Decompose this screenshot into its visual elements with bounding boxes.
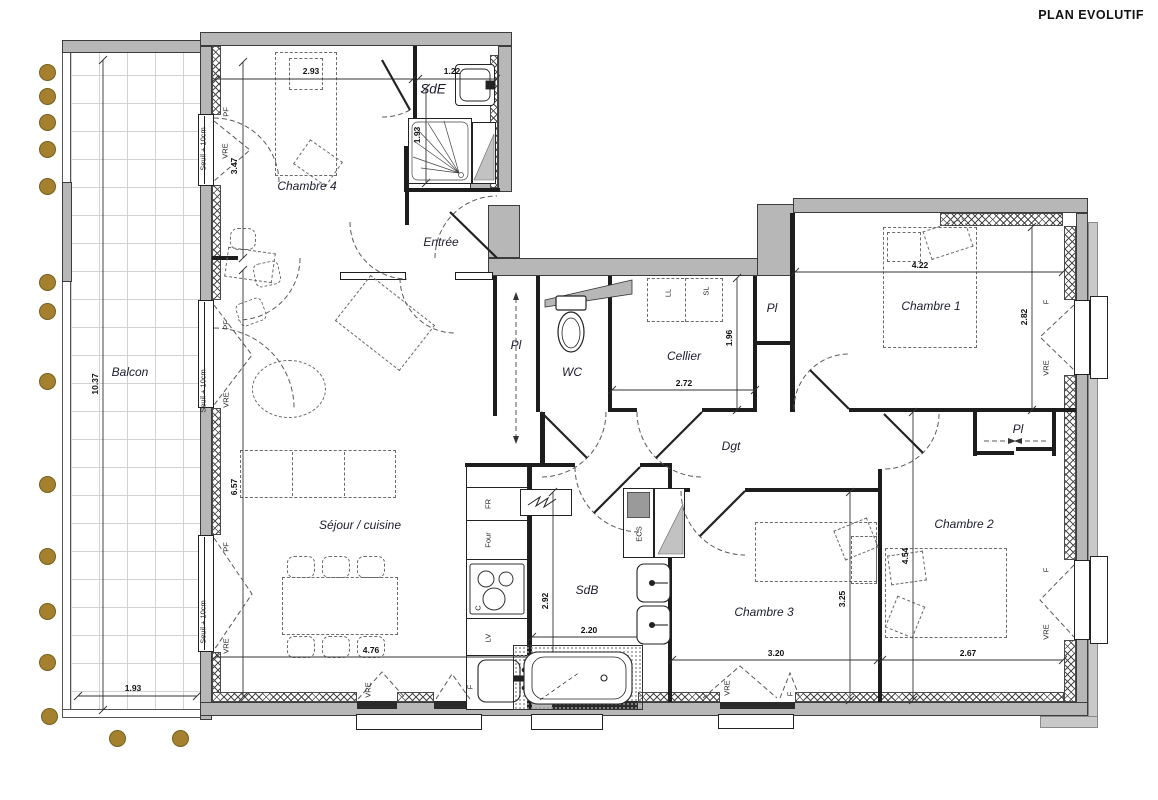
- balcony-post-dot: [39, 64, 56, 81]
- insulation-hatch: [1064, 226, 1076, 300]
- exterior-wall-right: [1076, 213, 1088, 716]
- laundry-divider: [685, 278, 686, 322]
- sofa: [240, 450, 396, 498]
- water-heater-label: ECS: [635, 526, 644, 541]
- pillow: [887, 232, 921, 262]
- window-sill-bottom: [531, 714, 603, 730]
- sofa-seat-line: [292, 452, 293, 496]
- insulation-hatch: [638, 692, 720, 702]
- insulation-hatch: [212, 408, 221, 535]
- closet-label-pl: Pl: [767, 301, 778, 315]
- balcony-railing-bottom: [62, 709, 212, 718]
- wall-cellier-bottom: [612, 408, 637, 412]
- dim-balcon-height: 10.37: [90, 373, 100, 394]
- dim-chambre4-width: 2.93: [303, 66, 320, 76]
- chair: [252, 260, 282, 289]
- threshold-label: Seuil + 10cm: [199, 127, 208, 171]
- window-type-pf: PF: [222, 107, 231, 117]
- dining-chair: [322, 636, 350, 658]
- wall-entree-stub: [405, 183, 409, 225]
- entry-wall-block: [488, 205, 520, 258]
- appliance-dishwasher-label: LV: [484, 634, 493, 643]
- kitchen-counter: [466, 466, 528, 488]
- dim-sejour-width: 4.76: [363, 645, 380, 655]
- room-label-entree: Entrée: [423, 235, 458, 249]
- room-label-cellier: Cellier: [667, 349, 701, 363]
- exterior-wall-top: [200, 32, 512, 46]
- dining-chair: [357, 556, 385, 578]
- insulation-hatch: [212, 46, 221, 115]
- wall-chambre3-top2: [745, 488, 878, 492]
- appliance-cooktop-label: C: [474, 605, 483, 610]
- window-sill-chambre1: [1090, 296, 1108, 379]
- dim-chambre4-height: 3.47: [229, 158, 239, 175]
- dim-chambre2-width: 2.67: [960, 648, 977, 658]
- balcony-post-dot: [39, 178, 56, 195]
- dim-chambre3-width: 3.20: [768, 648, 785, 658]
- appliance-oven-label: Four: [484, 532, 493, 547]
- balcony-post-dot: [39, 654, 56, 671]
- balcony-post-dot: [39, 141, 56, 158]
- floor-plan: PLAN EVOLUTIF: [0, 0, 1158, 800]
- wall-entree-sejour2: [455, 272, 493, 280]
- corridor-top-wall: [488, 258, 795, 276]
- window-type-pf: PF: [222, 320, 231, 330]
- closet-sliding-panel: [977, 451, 1014, 455]
- dim-chambre2-height: 4.54: [900, 548, 910, 565]
- wall-chambre1-left: [790, 213, 795, 412]
- exterior-wall-bottom: [200, 702, 1088, 716]
- window-type-f: F: [1042, 568, 1051, 573]
- insulation-hatch: [1064, 640, 1076, 702]
- dryer-label: SL: [702, 286, 711, 295]
- wall-chambre2-left: [878, 469, 882, 702]
- coffee-table: [252, 360, 326, 418]
- balcony-post-dot: [39, 88, 56, 105]
- dining-chair: [287, 556, 315, 578]
- dim-chambre1-height: 2.82: [1019, 309, 1029, 326]
- window-bottom-chambre3: [720, 702, 795, 709]
- shutter-vre: VRE: [364, 682, 373, 697]
- wall-pl-cellier-bottom: [757, 341, 790, 345]
- balcony-post-dot: [39, 114, 56, 131]
- room-label-chambre2: Chambre 2: [934, 517, 993, 531]
- wall-sejour-pl: [493, 276, 497, 416]
- window-chambre2: [1074, 560, 1090, 640]
- shower-panel: [472, 122, 496, 184]
- dim-sdb-width: 2.20: [581, 625, 598, 635]
- balcony-post-dot: [39, 476, 56, 493]
- room-label-balcon: Balcon: [112, 365, 149, 379]
- dim-sdb-height: 2.92: [540, 593, 550, 610]
- wall-wc-left: [536, 276, 540, 412]
- threshold-label: Seuil + 10cm: [199, 600, 208, 644]
- balcony-post-dot: [109, 730, 126, 747]
- dim-chambre3-height: 3.25: [837, 591, 847, 608]
- balcony-pillar: [62, 182, 72, 282]
- shutter-vre: VRE: [1042, 360, 1051, 375]
- shutter-vre: VRE: [222, 392, 231, 407]
- window-type-f: F: [466, 685, 475, 690]
- hood-unit: [520, 489, 572, 516]
- window-sill-bottom: [718, 714, 794, 729]
- shutter-vre: VRE: [221, 143, 230, 158]
- balcony-post-dot: [39, 548, 56, 565]
- dining-chair: [287, 636, 315, 658]
- desk-chambre3: [851, 536, 877, 584]
- exterior-cladding-corner: [1040, 716, 1098, 728]
- bathtub-surround: [513, 645, 643, 710]
- fridge: [466, 487, 528, 521]
- balcony-post-dot: [39, 373, 56, 390]
- chair: [234, 296, 269, 328]
- wall-passage: [540, 412, 545, 467]
- room-label-wc: WC: [562, 365, 582, 379]
- room-label-chambre4: Chambre 4: [277, 179, 336, 193]
- dining-table: [282, 577, 398, 635]
- dining-chair: [322, 556, 350, 578]
- room-label-sejour: Séjour / cuisine: [319, 518, 401, 532]
- insulation-hatch: [795, 692, 1064, 702]
- exterior-wall-sde-right: [498, 46, 512, 192]
- wall-cellier-bottom2: [702, 408, 757, 412]
- plan-title: PLAN EVOLUTIF: [1038, 8, 1144, 22]
- closet-sliding-panel: [1016, 447, 1053, 451]
- closet-label-pl: Pl: [1013, 422, 1024, 436]
- sdb-basins: [637, 564, 670, 644]
- window-type-pf: PF: [222, 542, 231, 552]
- window-bottom-sejour: [357, 701, 397, 709]
- insulation-hatch: [397, 692, 434, 702]
- threshold-label: Seuil + 10cm: [199, 369, 208, 413]
- room-label-sde: SdE: [420, 82, 446, 97]
- insulation-hatch: [1064, 375, 1076, 560]
- window-sill-bottom: [356, 714, 482, 730]
- insulation-hatch: [212, 692, 357, 702]
- insulation-hatch: [212, 185, 221, 300]
- chair: [230, 228, 256, 250]
- dim-balcon-width: 1.93: [125, 683, 142, 693]
- dim-cellier-width: 2.72: [676, 378, 693, 388]
- room-label-sdb: SdB: [576, 583, 599, 597]
- room-label-chambre1: Chambre 1: [901, 299, 960, 313]
- balcony-top-wall: [62, 40, 205, 53]
- room-label-chambre3: Chambre 3: [734, 605, 793, 619]
- exterior-wall-chambre1-top: [793, 198, 1088, 213]
- dim-sejour-height: 6.57: [229, 479, 239, 496]
- shutter-vre: VRE: [1042, 624, 1051, 639]
- washbasin-sde: [455, 64, 495, 106]
- dim-cellier-height: 1.96: [724, 330, 734, 347]
- wall-chambre1-bottom: [849, 408, 1076, 412]
- dim-sde-width: 1.22: [444, 66, 461, 76]
- water-heater: [627, 492, 650, 518]
- wall-sde-bottom: [404, 188, 500, 192]
- dim-sde-height: 1.93: [412, 127, 422, 144]
- window-sill-chambre2: [1090, 556, 1108, 644]
- closet-label-pl: Pl: [511, 338, 522, 352]
- armchair-sejour: [335, 275, 435, 371]
- appliance-fridge-label: FR: [484, 499, 493, 509]
- toilet: [556, 296, 586, 352]
- wall-wc-right: [608, 276, 612, 412]
- closet-pl-chambre2-left: [973, 412, 977, 456]
- washer-label: LL: [664, 289, 673, 297]
- dim-chambre1-width: 4.22: [912, 260, 929, 270]
- balcony-post-dot: [172, 730, 189, 747]
- room-label-dgt: Dgt: [722, 439, 741, 453]
- balcony-post-dot: [39, 303, 56, 320]
- window-type-f: F: [786, 692, 795, 697]
- shutter-vre: VRE: [723, 680, 732, 695]
- window-type-f: F: [1042, 300, 1051, 305]
- ecs-closet-door: [654, 488, 685, 558]
- balcony-post-dot: [39, 603, 56, 620]
- balcony-post-dot: [39, 274, 56, 291]
- oven: [466, 520, 528, 560]
- shutter-vre: VRE: [222, 638, 231, 653]
- window-chambre1: [1074, 300, 1090, 375]
- sofa-seat-line: [344, 452, 345, 496]
- balcony-post-dot: [41, 708, 58, 725]
- balcony-railing-left: [62, 45, 71, 718]
